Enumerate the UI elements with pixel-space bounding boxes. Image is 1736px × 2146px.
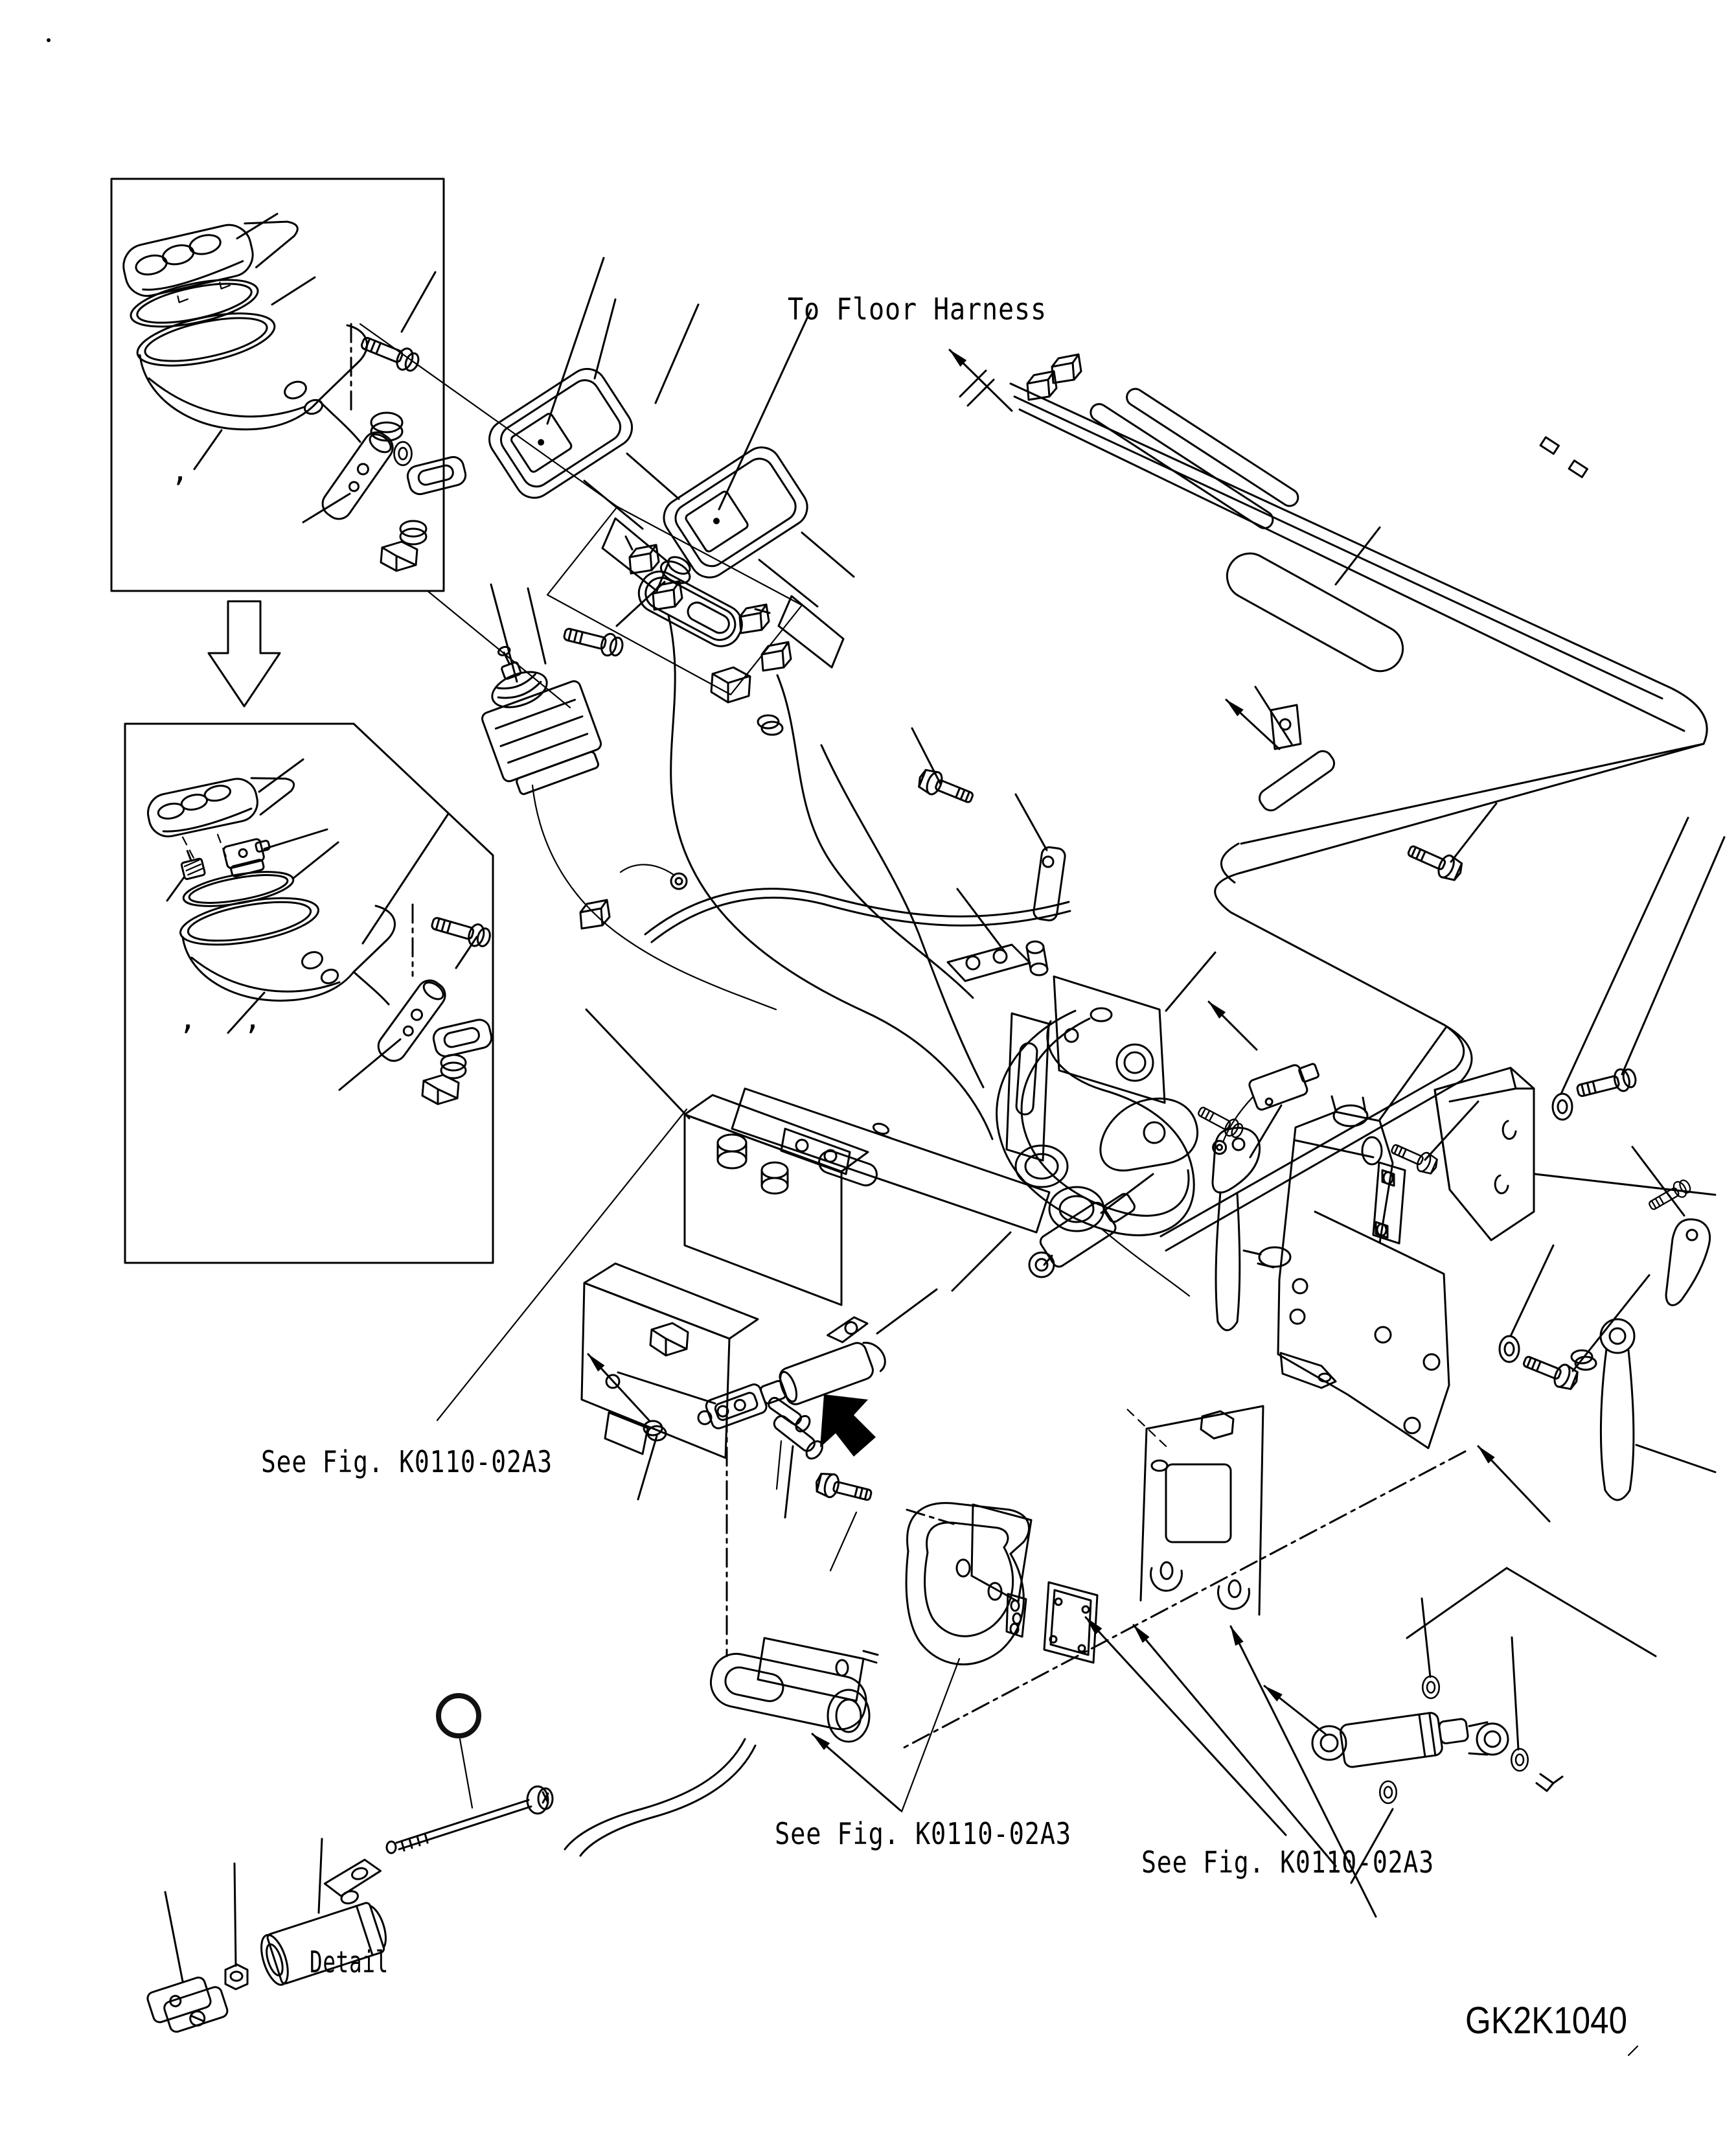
cotter-pin	[1536, 1774, 1562, 1791]
clamp-lever-small	[1647, 1177, 1710, 1306]
flange-bolt	[916, 767, 976, 809]
comma-mark: ,	[179, 1001, 198, 1036]
connector-cube	[740, 605, 769, 633]
pin-sleeve	[758, 715, 782, 735]
link-damper	[1029, 1186, 1141, 1277]
direction-arrow-icon	[812, 1734, 900, 1810]
lower-joystick-box: , ,	[125, 724, 494, 1263]
clamp-lever	[1196, 1103, 1260, 1330]
see-fig-leader	[437, 1109, 687, 1420]
washer	[394, 442, 412, 465]
cable-clip	[1540, 437, 1559, 454]
mount-plate	[1244, 1096, 1449, 1448]
hex-nut	[711, 667, 750, 702]
direction-arrow-icon	[1478, 1446, 1549, 1521]
joystick-cap	[119, 209, 308, 312]
leader-lines-box2	[167, 759, 477, 1090]
connector-cube	[1052, 354, 1081, 383]
bent-solid-arrow-icon	[820, 1394, 876, 1457]
console-box	[685, 1095, 868, 1305]
lower-left-bracket	[582, 1263, 758, 1458]
front-rail	[732, 1089, 1049, 1232]
washer	[1422, 1676, 1439, 1698]
connector-cube	[630, 545, 659, 573]
page-tick	[1628, 2046, 1638, 2055]
comma-mark: ,	[171, 453, 190, 488]
screw-bolt	[429, 912, 492, 950]
down-hollow-arrow-icon	[209, 601, 280, 706]
direction-arrow-icon	[950, 350, 1012, 411]
to-floor-harness-label: To Floor Harness	[788, 292, 1047, 327]
callout-number: 10	[446, 1703, 472, 1729]
hex-nut	[225, 1965, 247, 1989]
washer	[1500, 1336, 1519, 1362]
flange-bolt	[814, 1471, 873, 1507]
harness-loops	[997, 1011, 1194, 1296]
comma-mark: ,	[244, 1001, 262, 1036]
solenoid-switch-unit	[461, 582, 776, 1010]
screw-bolt	[1575, 1066, 1638, 1102]
pedal-frame-assembly	[582, 889, 1215, 1458]
direction-arrow-icon	[1134, 1625, 1336, 1866]
side-plate	[1373, 1162, 1405, 1243]
rocker-switch-1	[482, 362, 679, 591]
screw-bolt	[359, 332, 422, 375]
switch-leaders	[547, 258, 811, 509]
washer	[1380, 1781, 1397, 1803]
upper-joystick-box: ,	[111, 179, 468, 591]
flange-bolt	[1389, 1139, 1440, 1177]
rocker-switch-2	[657, 440, 854, 667]
flange-bolt	[1405, 840, 1465, 884]
harness-clamp	[1256, 705, 1338, 814]
harness-band	[1011, 384, 1707, 1251]
grip-body	[133, 303, 367, 442]
harness-clamp	[1033, 846, 1066, 921]
right-assembly-leaders	[1380, 818, 1724, 1472]
drawing-number: GK2K1040	[1465, 2000, 1627, 2042]
washer	[1511, 1749, 1528, 1771]
page-speck	[47, 38, 51, 42]
clevis-fork	[146, 1972, 229, 2038]
see-fig-label-bottom-center: See Fig. K0110-02A3	[775, 1816, 1071, 1851]
switch-wires	[668, 616, 992, 1139]
long-lever	[1571, 1319, 1634, 1500]
o-ring	[181, 865, 295, 912]
direction-arrow-icon	[588, 1354, 649, 1420]
washer	[1553, 1094, 1572, 1120]
curved-guard	[906, 1503, 1031, 1665]
lever-shaft	[374, 976, 494, 1104]
parts-diagram-page: ,	[0, 0, 1736, 2146]
callout-badge-10[interactable]: 10	[439, 1696, 479, 1736]
link-rod-damper	[1264, 1568, 1656, 1883]
direction-arrow-icon	[1086, 1617, 1286, 1835]
connector-cube	[653, 581, 682, 610]
exploded-parts-diagram: ,	[0, 0, 1736, 2146]
see-fig-label-bottom-right: See Fig. K0110-02A3	[1141, 1845, 1434, 1880]
centerline	[900, 1451, 1465, 1749]
joystick-cap	[144, 767, 299, 840]
wedge-block	[1435, 1068, 1534, 1240]
frame-side-piece	[1125, 1406, 1263, 1615]
detail-view: 10	[146, 1696, 553, 2038]
connector-cube	[762, 642, 791, 671]
small-connector	[179, 848, 205, 879]
connector-cube	[1027, 371, 1056, 400]
cable-clip	[1569, 461, 1587, 478]
see-fig-label-center-left: See Fig. K0110-02A3	[261, 1444, 553, 1479]
valve-block	[1054, 976, 1165, 1103]
pin-cylinder	[1027, 941, 1047, 975]
detail-label: Detail	[310, 1944, 389, 1979]
ring-terminal	[621, 864, 687, 889]
direction-arrow-icon	[1209, 1002, 1257, 1050]
